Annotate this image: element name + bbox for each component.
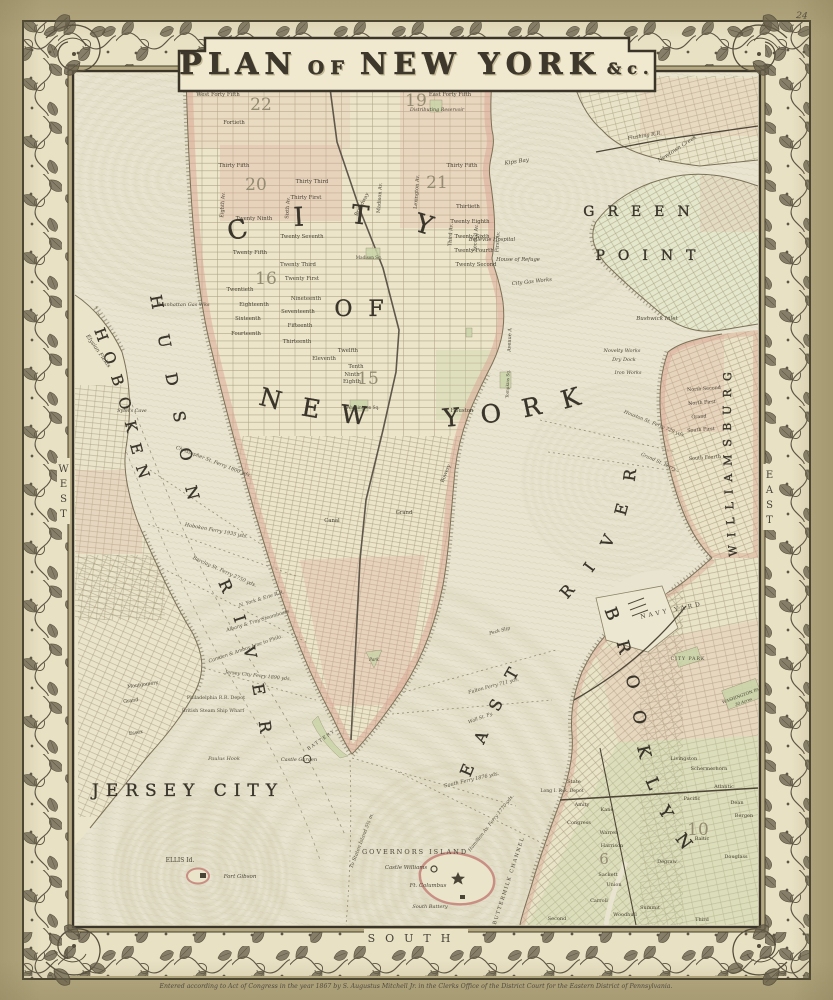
vignette-vertical: [0, 0, 833, 1000]
antique-map-page: 221920211615106 West Forty FifthEast For…: [0, 0, 833, 1000]
map-canvas: 221920211615106 West Forty FifthEast For…: [0, 0, 833, 1000]
